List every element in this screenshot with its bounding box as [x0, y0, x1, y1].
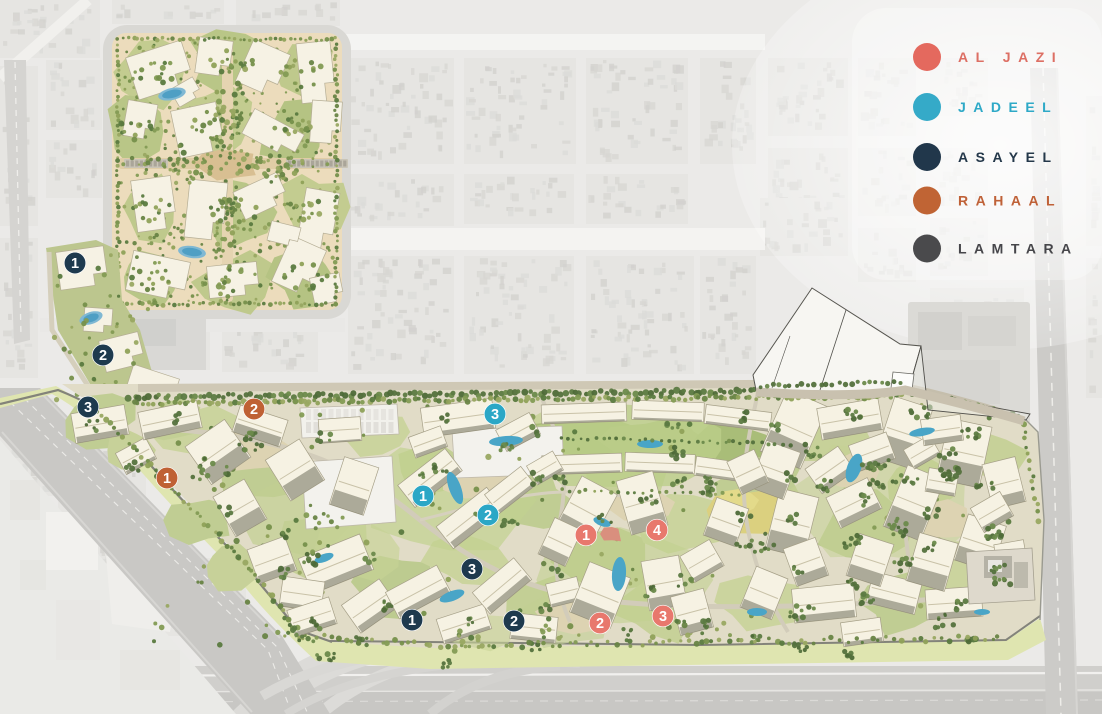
svg-text:3: 3	[84, 400, 92, 416]
svg-text:2: 2	[250, 402, 258, 418]
svg-text:2: 2	[484, 508, 492, 524]
svg-text:RAHAAL: RAHAAL	[958, 193, 1062, 209]
svg-text:2: 2	[596, 616, 604, 632]
svg-text:2: 2	[99, 348, 107, 364]
svg-text:JADEEL: JADEEL	[958, 99, 1058, 115]
svg-text:4: 4	[653, 523, 661, 539]
svg-text:3: 3	[659, 609, 667, 625]
svg-text:1: 1	[419, 489, 427, 505]
svg-text:1: 1	[408, 613, 416, 629]
svg-text:3: 3	[491, 407, 499, 423]
svg-text:3: 3	[468, 562, 476, 578]
svg-text:1: 1	[71, 256, 79, 272]
svg-text:AL JAZI: AL JAZI	[958, 49, 1063, 65]
svg-text:ASAYEL: ASAYEL	[958, 149, 1059, 165]
svg-text:1: 1	[582, 528, 590, 544]
svg-text:2: 2	[510, 614, 518, 630]
svg-text:LAMTARA: LAMTARA	[958, 241, 1079, 257]
svg-text:1: 1	[163, 471, 171, 487]
